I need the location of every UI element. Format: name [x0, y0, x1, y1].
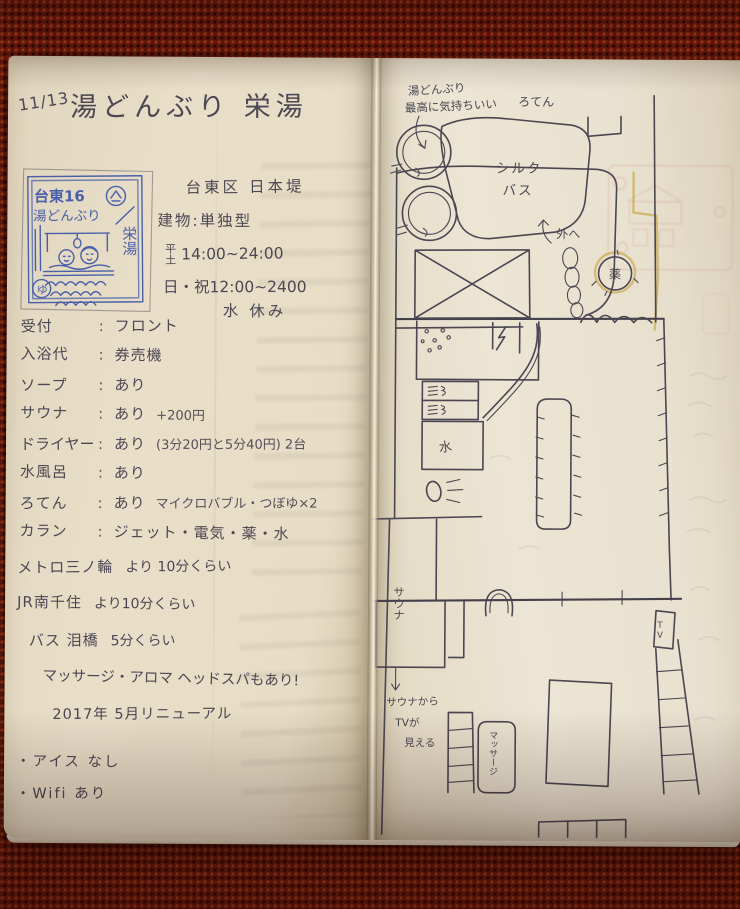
stamp-crest-icon [106, 186, 125, 205]
access-time: より10分くらい [94, 593, 196, 614]
stamp-bather-head [59, 250, 74, 265]
hours-sunday-line: 日・祝12:00~2400 [163, 275, 307, 297]
colon: : [99, 317, 115, 335]
access-list: メトロ三ノ輪より 10分くらい JR南千住より10分くらい バス 泪橋5分くらい [17, 554, 368, 651]
day-labels: 平 土 [165, 244, 176, 266]
colon: : [97, 522, 113, 540]
photo-of-notebook: 11/13 湯どんぶり 栄湯 台東16 湯どんぶり 栄湯 [0, 0, 740, 909]
map-label-sauna: サウナ [392, 586, 406, 621]
stamp-bath-name: 栄湯 [120, 226, 138, 256]
building-line: 建物:単独型 [157, 209, 252, 232]
detail-row-coldbath: 水風呂:あり [20, 460, 368, 494]
stamp-tile-pattern [46, 282, 106, 286]
access-time: 5分くらい [111, 630, 176, 650]
detail-row-soap: ソープ:あり [20, 373, 368, 403]
detail-value: 券売機 [114, 343, 162, 365]
map-label-massage: マッサージ [487, 731, 498, 776]
colon: : [98, 376, 114, 394]
colon: : [98, 404, 114, 422]
stamp-bather-head [81, 247, 98, 264]
detail-label: サウナ [20, 401, 98, 423]
detail-label: 水風呂 [20, 460, 98, 482]
detail-row-reception: 受付:フロント [21, 314, 369, 344]
entry-date: 11/13 [17, 88, 70, 114]
detail-value: あり [114, 402, 146, 423]
detail-label: 入浴代 [20, 342, 98, 364]
detail-extra: +200円 [156, 404, 205, 424]
basic-info-block: 台東区 日本堤 建物:単独型 平 土 14:00~24:00 日・祝12:00~… [158, 161, 372, 162]
left-page: 11/13 湯どんぶり 栄湯 台東16 湯どんぶり 栄湯 [4, 56, 375, 840]
rotenburo-tubs [390, 125, 457, 240]
center-platform [546, 680, 612, 786]
jet-seats [422, 381, 478, 419]
stamp-name-row: 湯どんぶり [33, 207, 101, 225]
weekday-hours: 14:00~24:00 [181, 244, 284, 263]
access-time: より 10分くらい [125, 555, 231, 576]
detail-extra: (3分20円と5分40円) 2台 [156, 434, 306, 453]
access-from: メトロ三ノ輪 [17, 556, 113, 578]
detail-extra: マイクロバブル・つぼゆ×2 [156, 493, 318, 512]
cold-bath-box [422, 421, 483, 469]
detail-row-ticket: 入浴代:券売機 [20, 342, 368, 376]
map-label-outside: 外へ [556, 227, 580, 241]
map-note-line2: 最高に気持ちいい [405, 97, 498, 115]
map-label-rotenburo: ろてん [518, 95, 554, 109]
detail-value: あり [114, 461, 146, 482]
bleed-through-stamp [608, 165, 733, 334]
building-label: 建物 [157, 212, 192, 230]
silk-bath-outline [440, 117, 590, 239]
detail-label: 受付 [21, 315, 99, 336]
colon: : [98, 435, 114, 453]
detail-value: あり [114, 374, 146, 395]
saturday-label: 土 [165, 255, 176, 266]
note-renewal: 2017年 5月リニューアル [52, 702, 232, 724]
colon: : [98, 494, 114, 512]
colon: : [98, 345, 114, 363]
detail-row-faucet: カラン:ジェット・電気・薬・水 [19, 519, 367, 553]
detail-value: ジェット・電気・薬・水 [113, 520, 289, 543]
detail-label: ドライヤー [20, 433, 98, 454]
location-line: 台東区 日本堤 [185, 175, 304, 198]
map-label-cold-water: 水 [438, 440, 453, 457]
access-row-bus: バス 泪橋5分くらい [29, 628, 367, 650]
access-from: バス 泪橋 [29, 629, 99, 650]
detail-row-rotenburo: ろてん:ありマイクロバブル・つぼゆ×2 [20, 491, 368, 521]
building-value: 単独型 [200, 212, 253, 230]
access-from: JR南千住 [17, 591, 82, 613]
washing-bench [536, 399, 583, 529]
sauna-note-line1: サウナから [386, 696, 439, 710]
detail-value: フロント [115, 315, 179, 336]
page-title: 湯どんぶり 栄湯 [70, 85, 308, 125]
map-label-silk2: バス [503, 183, 534, 199]
open-notebook: 11/13 湯どんぶり 栄湯 台東16 湯どんぶり 栄湯 [4, 56, 740, 843]
detail-row-sauna: サウナ:あり+200円 [20, 401, 368, 435]
facility-details-list: 受付:フロント 入浴代:券売機 ソープ:あり サウナ:あり+200円 ドライヤー… [19, 314, 368, 552]
note-ice: ・アイス なし [16, 750, 121, 772]
map-label-medicine: 薬 [609, 267, 621, 281]
sento-stamp: 台東16 湯どんぶり 栄湯 [19, 166, 158, 317]
note-services: マッサージ・アロマ ヘッドスパもあり! [42, 664, 299, 690]
stamp-yu-mark: ゆ [37, 284, 48, 297]
electric-bath-icon [497, 327, 506, 350]
detail-label: カラン [19, 519, 97, 541]
detail-value: あり [114, 492, 146, 513]
detail-row-dryer: ドライヤー:あり(3分20円と5分40円) 2台 [20, 432, 368, 462]
jet-icon [428, 386, 445, 395]
stamp-ink-art: 台東16 湯どんぶり 栄湯 [28, 176, 143, 306]
map-label-tv: TV [655, 621, 665, 641]
bleed-through-yellow-lines [595, 172, 659, 329]
access-row-jr: JR南千住より10分くらい [17, 591, 367, 616]
sauna-note-line3: 見える [404, 737, 435, 749]
map-label-silk1: シルク [496, 161, 543, 177]
outside-arrow [538, 220, 551, 243]
notes-block: マッサージ・アロマ ヘッドスパもあり! 2017年 5月リニューアル ・アイス … [17, 666, 369, 668]
detail-label: ソープ [20, 374, 98, 395]
bleed-through-writing [488, 372, 726, 720]
crossed-box [415, 249, 530, 319]
shower-icon [425, 479, 463, 502]
bubble-jets-icon [421, 329, 450, 353]
floor-map-drawing: 湯どんぶり 最高に気持ちいい ろてん [370, 78, 740, 840]
stamp-water-waves [49, 265, 109, 269]
hours-weekday-line: 平 土 14:00~24:00 [165, 242, 284, 265]
sauna-note-arrow [392, 667, 400, 690]
right-page: 湯どんぶり 最高に気持ちいい ろてん [370, 58, 740, 842]
map-note-line1: 湯どんぶり [407, 81, 465, 99]
stamp-ward-number: 台東16 [34, 187, 85, 205]
detail-label: ろてん [20, 492, 98, 513]
access-row-metro: メトロ三ノ輪より 10分くらい [17, 553, 367, 578]
note-wifi: ・Wifi あり [16, 782, 107, 803]
stamp-lantern-icon [74, 239, 81, 248]
jet-icon [428, 405, 445, 414]
sauna-note-line2: TVが [394, 716, 420, 729]
lower-structures [448, 679, 627, 837]
detail-value: あり [114, 433, 146, 454]
colon: : [98, 463, 114, 481]
locker-row [539, 819, 626, 838]
